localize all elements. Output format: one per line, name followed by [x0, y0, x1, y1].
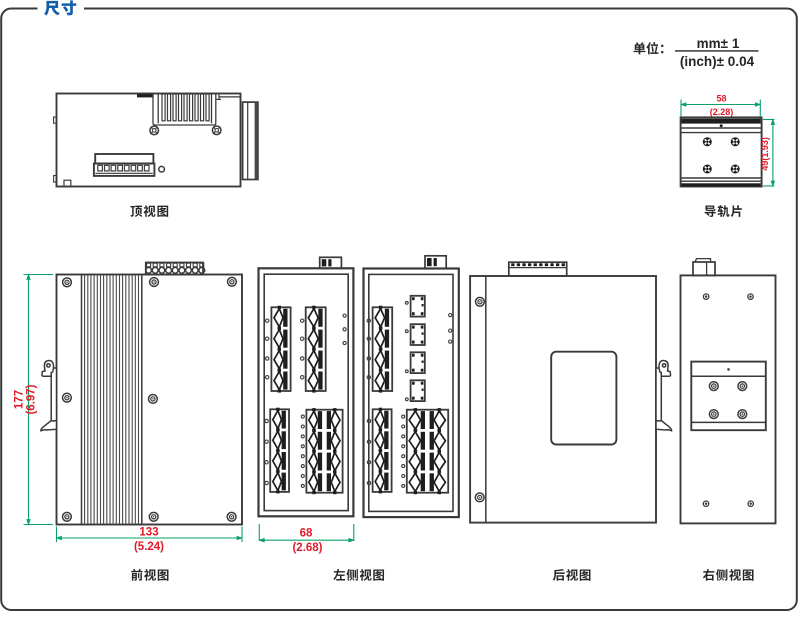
- svg-text:(inch)± 0.04: (inch)± 0.04: [680, 54, 755, 69]
- svg-text:(2.68): (2.68): [292, 542, 322, 554]
- svg-text:(6.97): (6.97): [26, 384, 38, 414]
- svg-text:68: 68: [300, 528, 313, 540]
- svg-text:177: 177: [14, 390, 26, 409]
- svg-text:133: 133: [139, 526, 158, 538]
- svg-text:mm± 1: mm± 1: [697, 36, 740, 51]
- svg-text:(5.24): (5.24): [134, 541, 164, 553]
- svg-text:58: 58: [716, 94, 726, 104]
- svg-text:(2.28): (2.28): [710, 107, 734, 117]
- svg-text:49(1.93): 49(1.93): [760, 137, 770, 171]
